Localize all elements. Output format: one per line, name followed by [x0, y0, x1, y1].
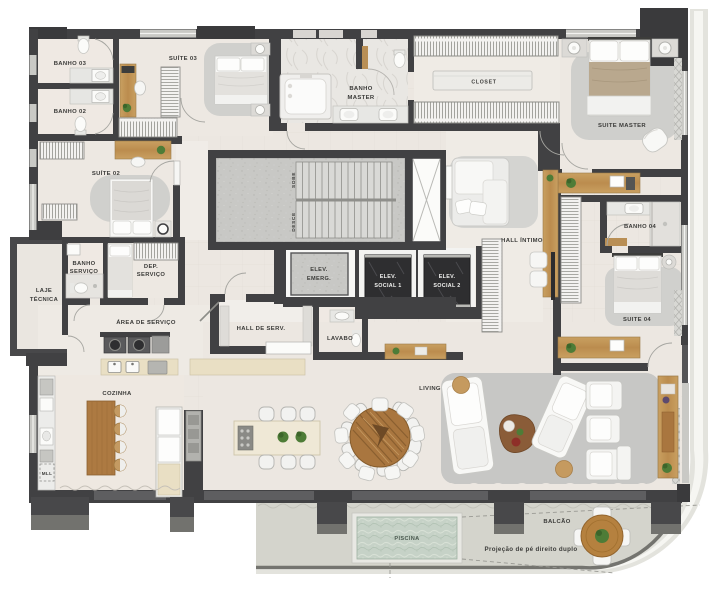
svg-text:EMERG.: EMERG.	[307, 276, 331, 282]
svg-text:LAJE: LAJE	[36, 288, 52, 294]
svg-text:PISCINA: PISCINA	[394, 536, 419, 542]
svg-text:SUITE 04: SUITE 04	[623, 317, 651, 323]
svg-text:SUITE MASTER: SUITE MASTER	[598, 123, 646, 129]
svg-text:DESCE: DESCE	[291, 212, 297, 232]
svg-text:MLL: MLL	[42, 471, 53, 476]
svg-text:ELEV.: ELEV.	[310, 267, 327, 273]
svg-text:HALL DE SERV.: HALL DE SERV.	[237, 326, 286, 332]
svg-text:BANHO 04: BANHO 04	[624, 224, 657, 230]
svg-text:SUÍTE 02: SUÍTE 02	[92, 169, 121, 177]
svg-text:COZINHA: COZINHA	[102, 391, 132, 397]
svg-text:ELEV.: ELEV.	[439, 274, 456, 280]
svg-text:BALCÃO: BALCÃO	[543, 518, 570, 525]
svg-text:DEP.: DEP.	[144, 264, 158, 270]
svg-text:SERVIÇO: SERVIÇO	[137, 272, 166, 278]
svg-text:Projeção de pé direito duplo: Projeção de pé direito duplo	[485, 546, 578, 553]
svg-text:BANHO: BANHO	[349, 86, 372, 92]
svg-text:SOCIAL 2: SOCIAL 2	[433, 283, 460, 289]
svg-text:SUÍTE 03: SUÍTE 03	[169, 54, 198, 62]
svg-text:MASTER: MASTER	[348, 95, 375, 101]
svg-text:LAVABO: LAVABO	[327, 336, 353, 342]
svg-text:BANHO: BANHO	[72, 261, 95, 267]
svg-text:BANHO 03: BANHO 03	[54, 61, 87, 67]
svg-text:ÁREA DE SERVIÇO: ÁREA DE SERVIÇO	[116, 319, 176, 326]
svg-text:SOCIAL 1: SOCIAL 1	[374, 283, 401, 289]
svg-text:HALL ÍNTIMO: HALL ÍNTIMO	[501, 236, 543, 244]
svg-text:SOBE: SOBE	[291, 172, 297, 188]
svg-text:CLOSET: CLOSET	[471, 80, 496, 86]
svg-text:SERVIÇO: SERVIÇO	[70, 269, 99, 275]
svg-text:TÉCNICA: TÉCNICA	[30, 295, 59, 303]
svg-text:ELEV.: ELEV.	[380, 274, 397, 280]
svg-text:BANHO 02: BANHO 02	[54, 109, 87, 115]
svg-text:LIVING: LIVING	[419, 386, 441, 392]
